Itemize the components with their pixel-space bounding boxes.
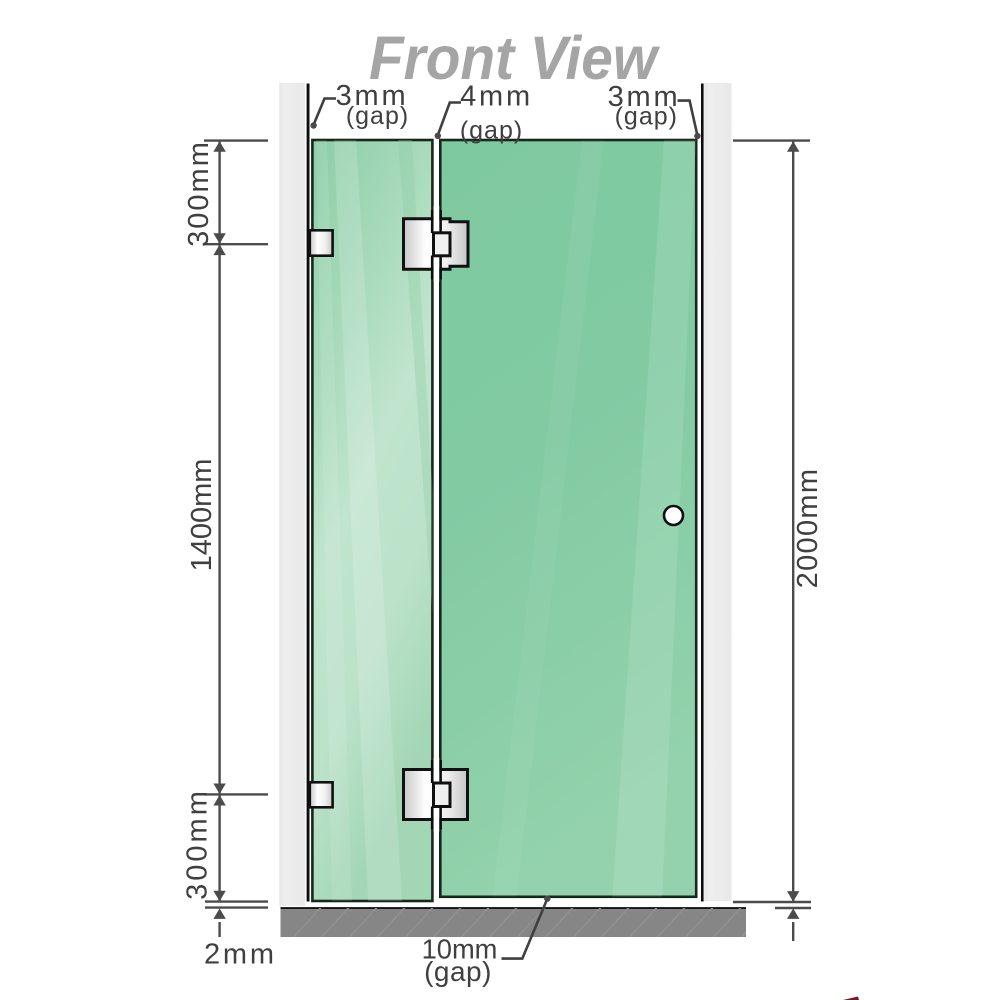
svg-text:(gap): (gap) — [346, 102, 409, 130]
svg-text:(gap): (gap) — [615, 103, 678, 131]
svg-text:300mm: 300mm — [182, 788, 214, 900]
svg-text:4mm: 4mm — [460, 81, 533, 113]
svg-text:(gap): (gap) — [424, 956, 492, 987]
svg-text:300mm: 300mm — [183, 140, 215, 247]
svg-text:(gap): (gap) — [460, 117, 523, 145]
svg-text:1400mm: 1400mm — [186, 459, 218, 572]
svg-text:2000mm: 2000mm — [792, 468, 824, 589]
svg-text:2mm: 2mm — [204, 939, 277, 971]
